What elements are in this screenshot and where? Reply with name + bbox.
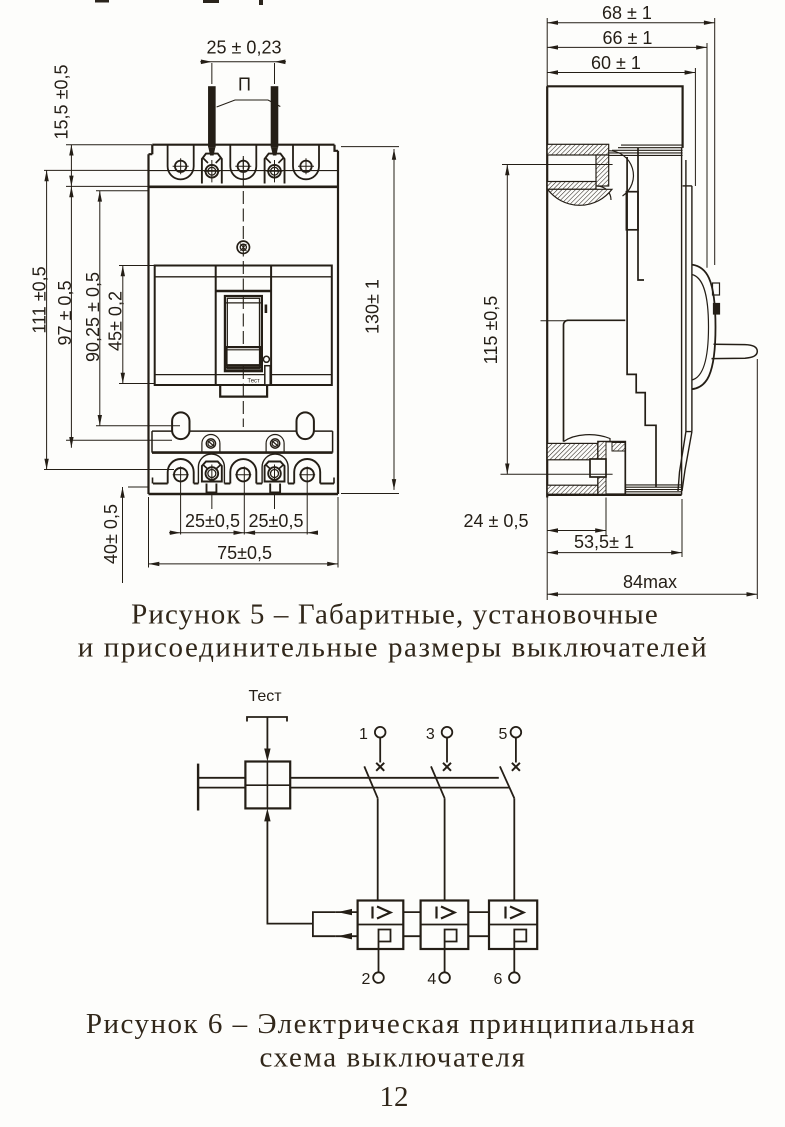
svg-text:25±0,5: 25±0,5 bbox=[249, 511, 304, 531]
svg-text:4: 4 bbox=[427, 971, 436, 988]
svg-text:53,5± 1: 53,5± 1 bbox=[574, 532, 634, 552]
svg-text:5: 5 bbox=[498, 726, 507, 743]
svg-text:84max: 84max bbox=[623, 572, 677, 592]
svg-text:111 ±0,5: 111 ±0,5 bbox=[30, 266, 50, 333]
svg-text:и присоединительные размеры вы: и присоединительные размеры выключателей bbox=[78, 632, 709, 664]
svg-text:12: 12 bbox=[380, 1081, 409, 1113]
svg-text:75±0,5: 75±0,5 bbox=[217, 543, 272, 563]
svg-text:130± 1: 130± 1 bbox=[362, 279, 382, 334]
svg-text:Тест: Тест bbox=[247, 379, 260, 385]
svg-text:3: 3 bbox=[426, 726, 435, 743]
svg-text:1: 1 bbox=[359, 726, 368, 743]
svg-text:68 ± 1: 68 ± 1 bbox=[602, 3, 652, 23]
svg-text:45± 0,2: 45± 0,2 bbox=[106, 291, 126, 351]
svg-text:90,25 ± 0,5: 90,25 ± 0,5 bbox=[83, 272, 103, 362]
svg-text:66 ± 1: 66 ± 1 bbox=[603, 28, 653, 48]
svg-text:схема выключателя: схема выключателя bbox=[260, 1042, 527, 1074]
svg-text:24 ± 0,5: 24 ± 0,5 bbox=[464, 511, 529, 531]
svg-text:Тест: Тест bbox=[248, 688, 282, 705]
svg-text:П: П bbox=[238, 74, 251, 94]
svg-text:15,5 ±0,5: 15,5 ±0,5 bbox=[52, 65, 72, 140]
svg-text:25 ± 0,23: 25 ± 0,23 bbox=[207, 38, 282, 58]
svg-text:2: 2 bbox=[362, 971, 371, 988]
svg-text:Рисунок 6 – Электрическая прин: Рисунок 6 – Электрическая принципиальная bbox=[86, 1008, 696, 1040]
svg-text:6: 6 bbox=[494, 971, 503, 988]
svg-text:Рисунок 5 – Габаритные, устано: Рисунок 5 – Габаритные, установочные bbox=[131, 599, 659, 631]
svg-text:97 ± 0,5: 97 ± 0,5 bbox=[55, 281, 75, 346]
svg-text:40± 0,5: 40± 0,5 bbox=[101, 504, 121, 564]
svg-text:25±0,5: 25±0,5 bbox=[185, 511, 240, 531]
svg-text:115 ±0,5: 115 ±0,5 bbox=[481, 296, 501, 365]
svg-text:60 ± 1: 60 ± 1 bbox=[591, 53, 641, 73]
